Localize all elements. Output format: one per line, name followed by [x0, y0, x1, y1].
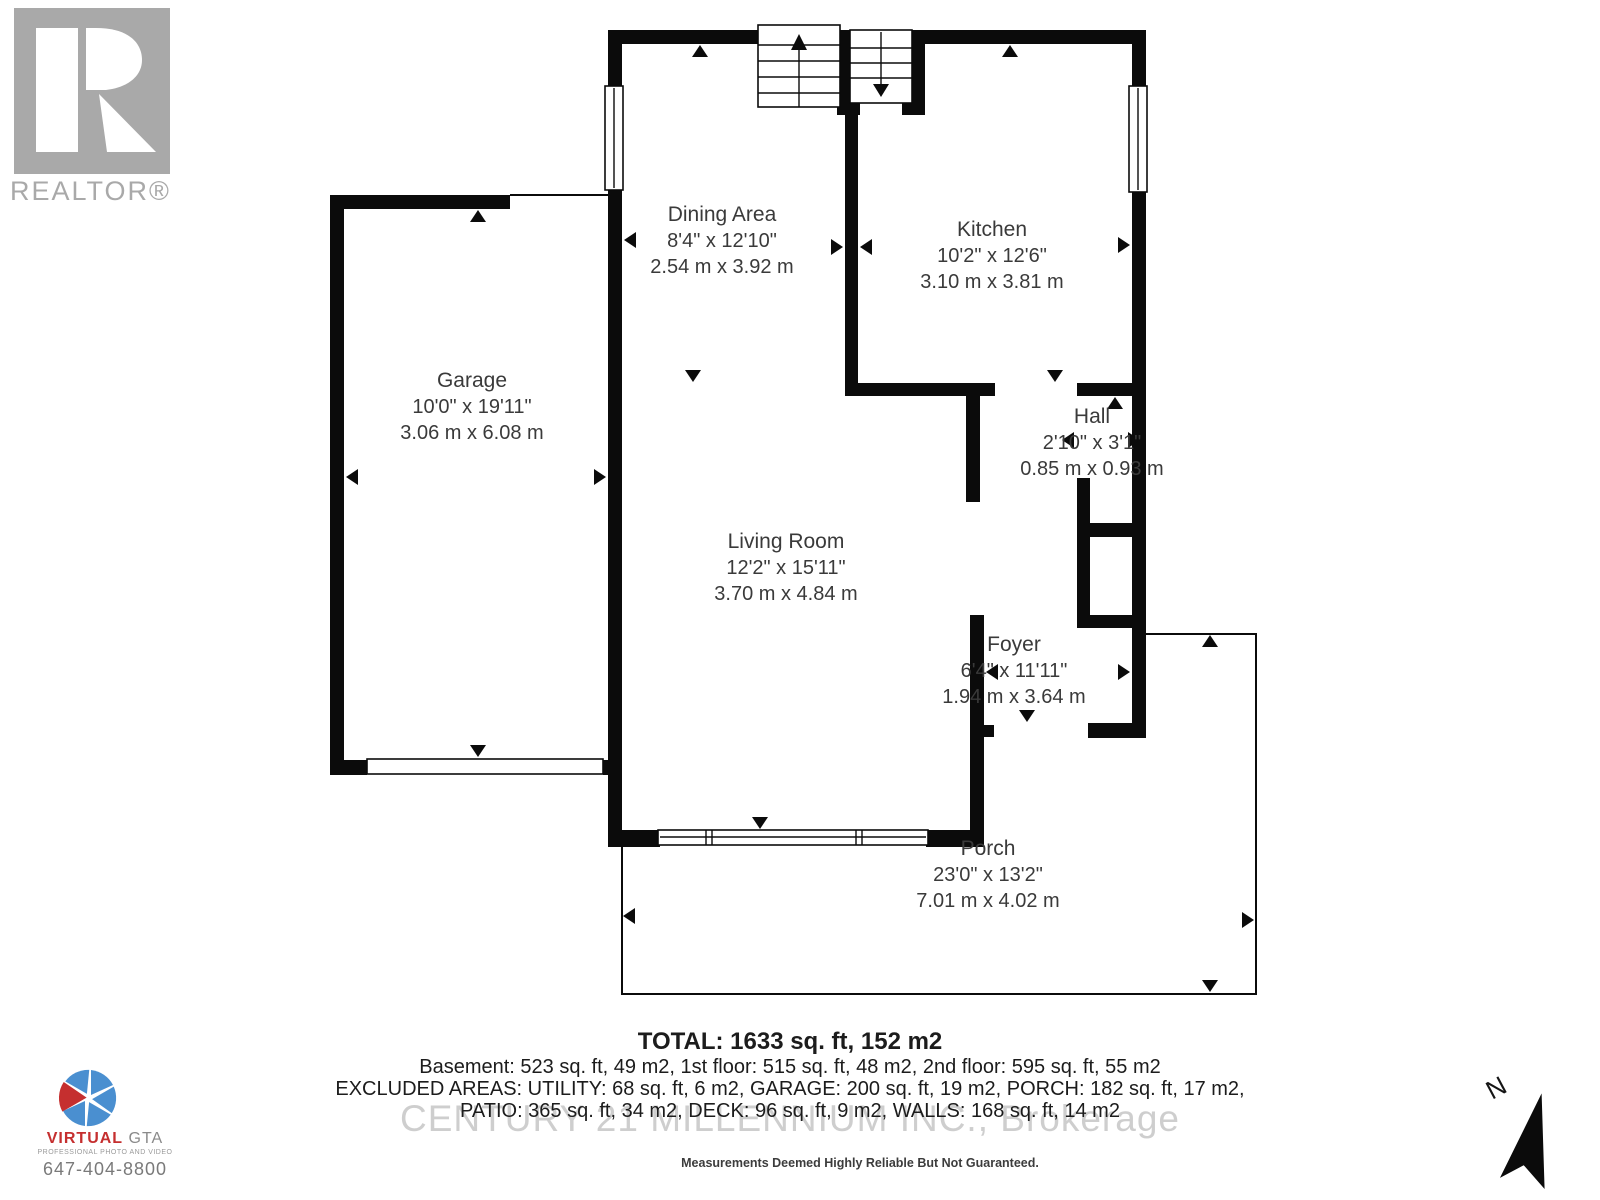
room-label-porch: Porch 23'0" x 13'2" 7.01 m x 4.02 m [838, 836, 1138, 914]
measurement-disclaimer: Measurements Deemed Highly Reliable But … [160, 1156, 1560, 1170]
room-label-garage: Garage 10'0" x 19'11" 3.06 m x 6.08 m [322, 368, 622, 446]
realtor-wordmark: REALTOR® [10, 176, 178, 207]
excluded-areas-line-1: EXCLUDED AREAS: UTILITY: 68 sq. ft, 6 m2… [0, 1078, 1580, 1100]
area-summary: TOTAL: 1633 sq. ft, 152 m2 Basement: 523… [0, 1028, 1580, 1122]
photographer-name: VIRTUAL GTA [30, 1130, 180, 1148]
excluded-areas-line-2: PATIO: 365 sq. ft, 34 m2, DECK: 96 sq. f… [0, 1100, 1580, 1122]
room-label-hall: Hall 2'10" x 3'1" 0.85 m x 0.93 m [942, 404, 1242, 482]
room-label-kitchen: Kitchen 10'2" x 12'6" 3.10 m x 3.81 m [842, 217, 1142, 295]
photographer-tagline: PROFESSIONAL PHOTO AND VIDEO [30, 1149, 180, 1156]
room-label-living-room: Living Room 12'2" x 15'11" 3.70 m x 4.84… [636, 529, 936, 607]
room-label-foyer: Foyer 6'4" x 11'11" 1.94 m x 3.64 m [864, 632, 1164, 710]
photographer-phone: 647-404-8800 [30, 1159, 180, 1180]
floor-plan-page: N Dining Area 8'4" x 12'10" 2.54 m x 3.9… [0, 0, 1600, 1200]
total-area-line: TOTAL: 1633 sq. ft, 152 m2 [0, 1028, 1580, 1056]
room-label-dining-area: Dining Area 8'4" x 12'10" 2.54 m x 3.92 … [572, 202, 872, 280]
staircase-down [850, 30, 912, 103]
floor-areas-line: Basement: 523 sq. ft, 49 m2, 1st floor: … [0, 1056, 1580, 1078]
realtor-logo [14, 8, 170, 174]
garage-door [367, 759, 603, 774]
staircase-up [758, 25, 840, 107]
